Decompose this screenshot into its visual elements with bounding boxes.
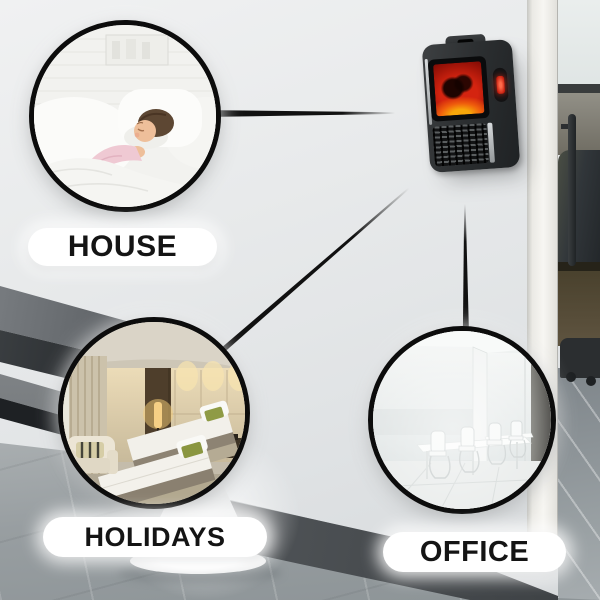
heater-vent-grille bbox=[432, 123, 489, 167]
callout-circle-office bbox=[368, 326, 556, 514]
label-holidays-text: HOLIDAYS bbox=[84, 522, 225, 553]
product-infographic: HOUSE HOLIDAYS OFFICE bbox=[0, 0, 600, 600]
chair-caster-icon bbox=[586, 376, 596, 386]
heater-body bbox=[422, 39, 521, 173]
office-photo bbox=[373, 331, 551, 509]
callout-circle-holidays bbox=[58, 317, 250, 509]
wood-floor bbox=[558, 262, 600, 346]
desk-silhouette bbox=[558, 262, 600, 271]
house-photo bbox=[34, 25, 216, 207]
flame-display bbox=[428, 56, 490, 122]
office-chair-silhouette bbox=[558, 150, 600, 268]
label-house: HOUSE bbox=[28, 228, 217, 266]
chair-caster-icon bbox=[566, 372, 576, 382]
office-chair-base bbox=[560, 338, 600, 378]
power-led-icon bbox=[496, 76, 505, 95]
door-handle bbox=[568, 114, 576, 266]
holidays-photo bbox=[63, 322, 245, 504]
label-house-text: HOUSE bbox=[68, 230, 177, 264]
flame-effect-icon bbox=[433, 61, 485, 116]
callout-circle-house bbox=[29, 20, 221, 212]
label-office-text: OFFICE bbox=[420, 536, 529, 569]
glass-door-sky bbox=[558, 0, 600, 90]
label-office: OFFICE bbox=[383, 532, 566, 572]
label-holidays: HOLIDAYS bbox=[43, 517, 267, 557]
glass-door-rail bbox=[558, 84, 600, 93]
power-led-recess bbox=[492, 67, 508, 102]
wall-outlet-heater bbox=[422, 39, 521, 173]
tile-floor-right bbox=[558, 368, 600, 600]
